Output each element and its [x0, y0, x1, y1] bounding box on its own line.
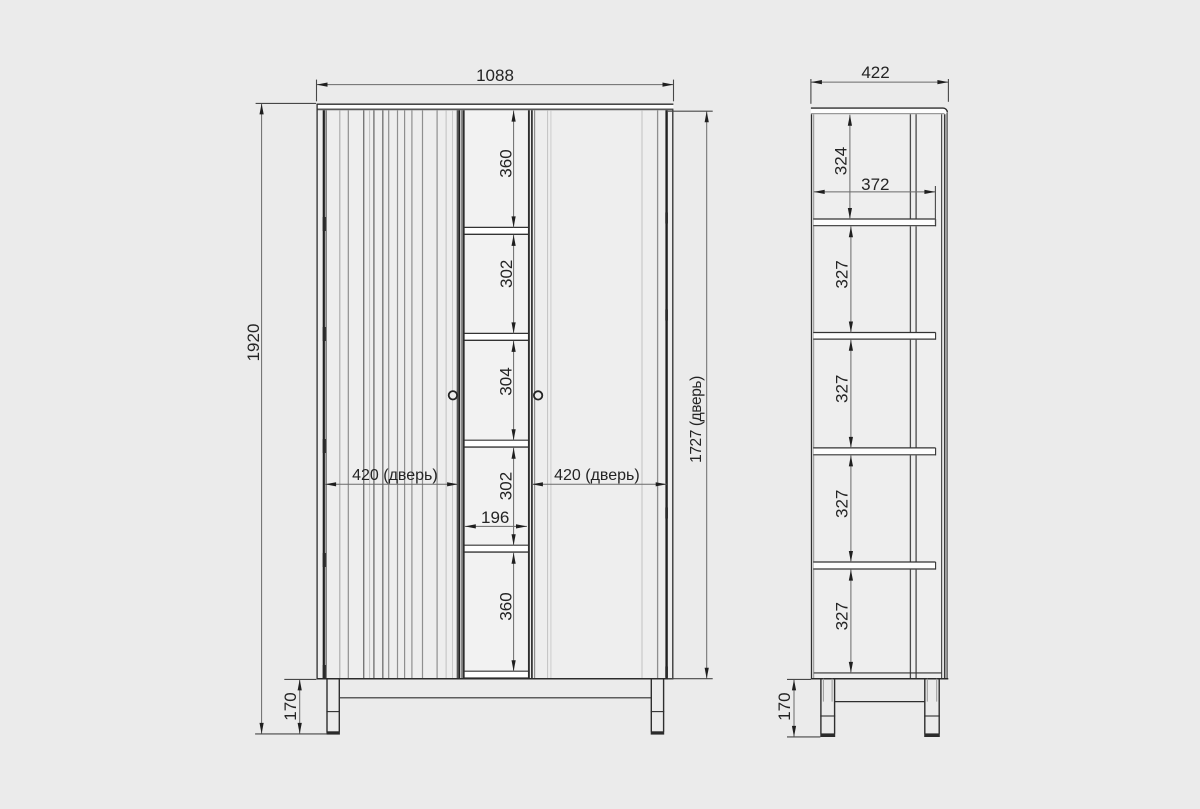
svg-text:1727 (дверь): 1727 (дверь): [688, 376, 705, 463]
svg-text:327: 327: [832, 490, 851, 518]
svg-text:327: 327: [832, 375, 851, 403]
svg-text:420 (дверь): 420 (дверь): [554, 467, 640, 484]
svg-text:327: 327: [832, 602, 851, 630]
svg-text:360: 360: [497, 149, 516, 177]
svg-text:327: 327: [832, 260, 851, 288]
svg-text:304: 304: [497, 367, 516, 395]
svg-text:324: 324: [831, 147, 850, 175]
svg-text:170: 170: [775, 692, 794, 720]
svg-text:372: 372: [861, 175, 889, 194]
svg-text:302: 302: [497, 472, 516, 500]
svg-text:420 (дверь): 420 (дверь): [352, 467, 438, 484]
svg-text:422: 422: [861, 63, 889, 82]
svg-text:302: 302: [497, 260, 516, 288]
svg-text:1920: 1920: [244, 324, 263, 362]
svg-text:1088: 1088: [476, 66, 514, 85]
svg-text:360: 360: [497, 592, 516, 620]
svg-text:196: 196: [481, 508, 509, 527]
svg-text:170: 170: [281, 692, 300, 720]
